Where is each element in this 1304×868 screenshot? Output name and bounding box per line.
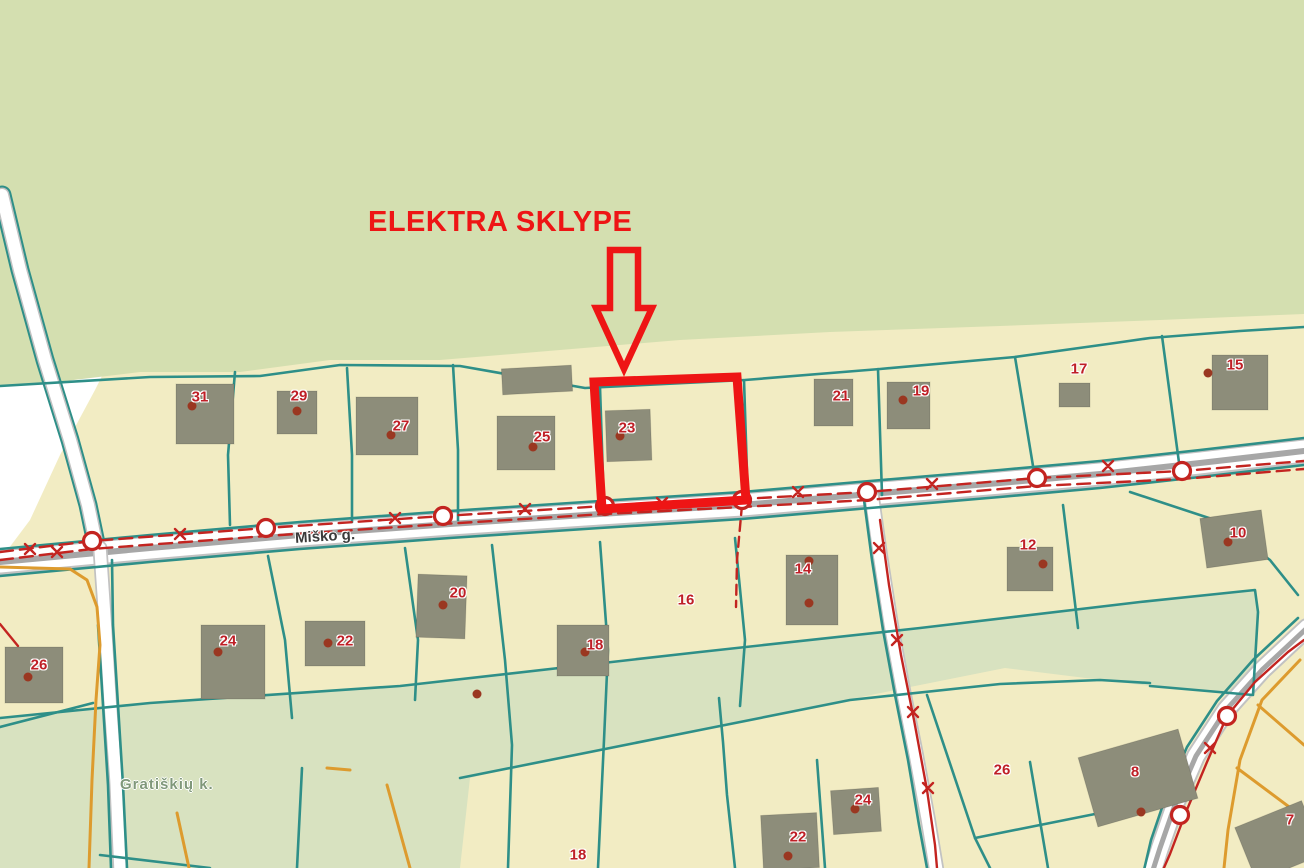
cadastral-map[interactable]: ELEKTRA SKLYPE Miško g. Gratiškių k. 312…	[0, 0, 1304, 868]
map-canvas-svg	[0, 0, 1304, 868]
